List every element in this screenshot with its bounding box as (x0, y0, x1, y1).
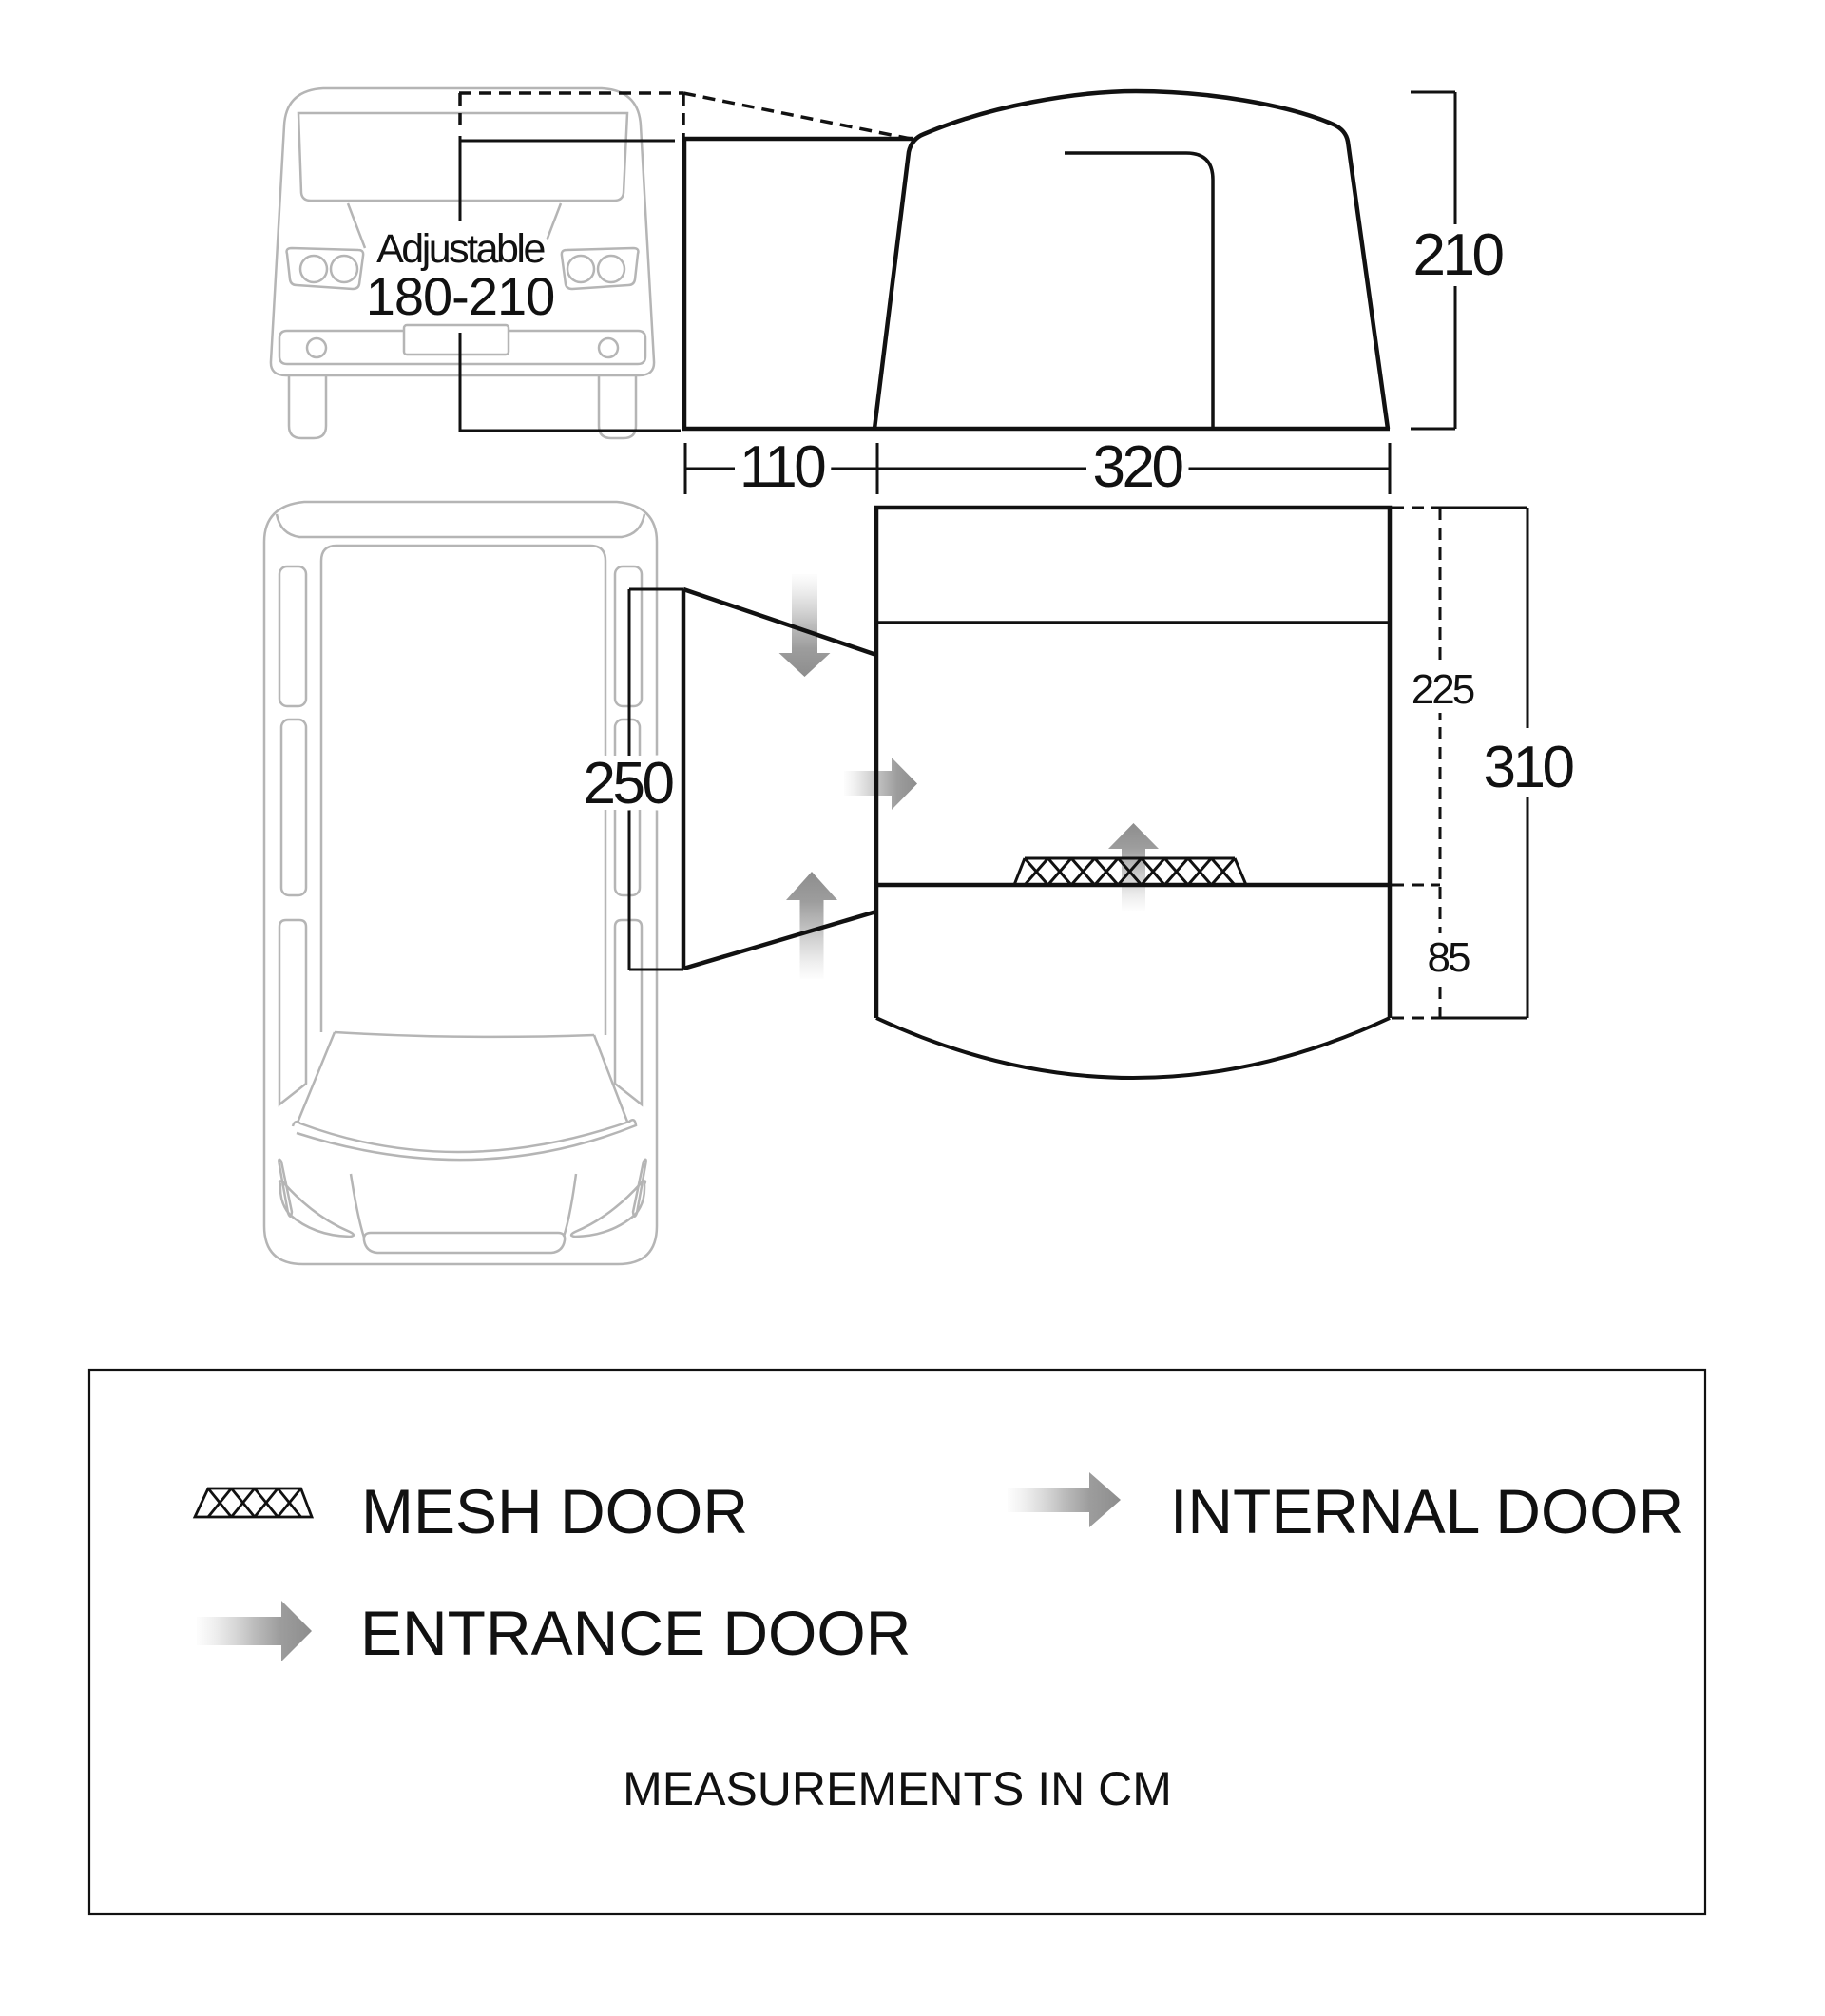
svg-text:85: 85 (1428, 934, 1470, 981)
svg-text:310: 310 (1484, 735, 1574, 800)
svg-text:225: 225 (1412, 666, 1474, 713)
svg-text:MESH DOOR: MESH DOOR (361, 1476, 748, 1546)
svg-text:320: 320 (1093, 434, 1183, 500)
svg-text:Adjustable: Adjustable (376, 226, 544, 272)
svg-text:MEASUREMENTS IN CM: MEASUREMENTS IN CM (623, 1762, 1172, 1815)
svg-text:110: 110 (740, 434, 825, 500)
svg-text:180-210: 180-210 (366, 266, 555, 326)
svg-text:INTERNAL DOOR: INTERNAL DOOR (1170, 1476, 1683, 1546)
svg-text:ENTRANCE DOOR: ENTRANCE DOOR (360, 1598, 911, 1668)
svg-text:210: 210 (1413, 222, 1504, 288)
svg-text:250: 250 (584, 751, 674, 816)
